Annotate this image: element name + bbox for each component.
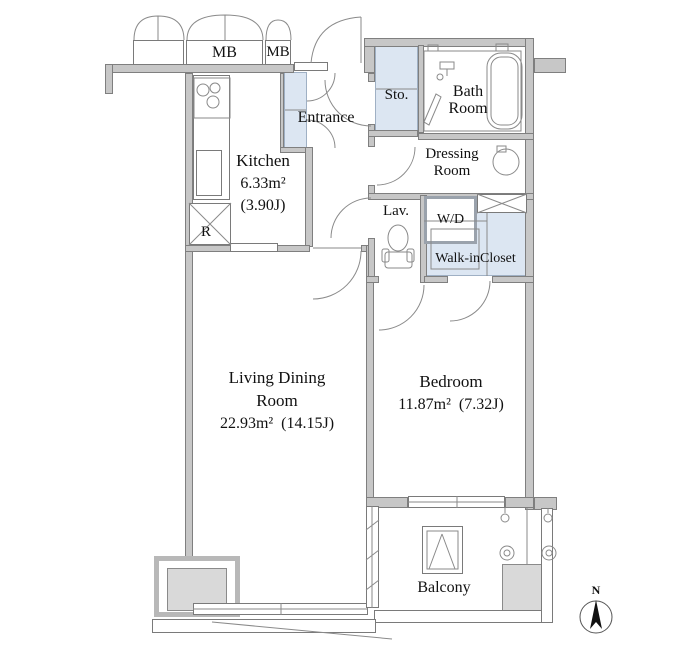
wall-segment [418,133,534,140]
bedroom-window [408,496,505,508]
lavatory-label: Lav. [372,202,420,221]
north-arrow [580,600,612,633]
wall-segment [185,73,193,558]
refrigerator-label: R [193,223,219,242]
entrance-label: Entrance [288,108,364,128]
wall-segment [280,73,284,150]
entrance-door-arc [311,17,361,63]
dressing-room-label: DressingRoom [400,146,504,181]
wall-segment [525,38,534,510]
washer-dryer-label: W/D [426,211,475,229]
wall-segment [492,276,534,283]
meter-box [133,40,184,65]
floorplan-linework [0,0,700,650]
pipe-space [477,194,527,213]
balcony-railing [374,610,553,623]
wall-segment [505,497,534,508]
wall-segment [368,130,418,137]
toilet [382,225,414,268]
bath-room-label: BathRoom [428,84,508,118]
kitchen-label: Kitchen 6.33m² (3.90J) [203,149,323,218]
meter-box-label: MB [263,40,293,65]
kitchen-pass-window [230,243,278,252]
meter-box-doors [134,15,291,40]
wall-segment [366,276,379,283]
north-label: N [586,583,606,598]
wall-segment [418,45,424,133]
balcony-railing-right [541,508,553,623]
wall-segment [534,58,566,73]
floor-plan: MB MB Entrance Sto. BathRoom DressingRoo… [0,0,700,650]
living-room-window [193,603,368,615]
wall-segment [105,64,294,73]
living-dining-label: Living Dining Room 22.93m² (14.15J) [177,367,377,434]
bedroom-label: Bedroom 11.87m² (7.32J) [361,370,541,416]
living-balcony-window [366,506,379,608]
wall-segment [368,73,375,82]
walk-in-closet-label: Walk-inCloset [424,250,527,268]
wall-segment [105,64,113,94]
balcony-railing-left [152,619,376,633]
entrance-door-sill [294,62,328,71]
balcony-label: Balcony [404,578,484,598]
wall-segment [424,276,448,283]
storage-label: Sto. [375,86,418,105]
wall-segment [364,38,534,47]
escape-hatch [422,526,463,574]
meter-box-label: MB [186,40,263,65]
